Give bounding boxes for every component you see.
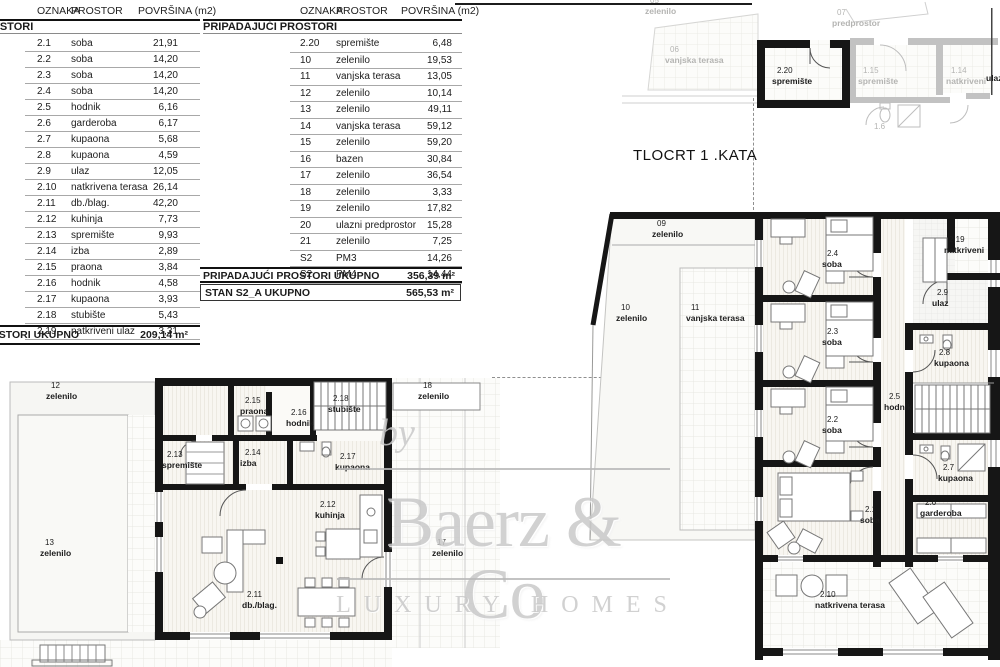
plan-label: 2.1soba [860, 505, 880, 525]
row-code: 14 [300, 121, 311, 132]
row-area: 7,25 [433, 236, 452, 247]
row-name: zelenilo [336, 88, 370, 99]
row-code: 17 [300, 170, 311, 181]
table-row: 2.10 natkrivena terasa 26,14 [25, 180, 200, 196]
row-name: soba [71, 38, 93, 49]
row-area: 5,68 [159, 134, 178, 145]
row-code: 2.2 [37, 54, 51, 65]
section-title-pripadajuci: PRIPADAJUĆI PROSTORI [203, 21, 337, 33]
row-name: natkrivena terasa [71, 182, 148, 193]
table-row: 2.7 kupaona 5,68 [25, 132, 200, 148]
table-row: 2.4 soba 14,20 [25, 84, 200, 100]
plan-label: 06vanjska terasa [665, 45, 724, 65]
row-area: 4,58 [159, 278, 178, 289]
row-name: garderoba [71, 118, 117, 129]
row-code: 2.13 [37, 230, 56, 241]
plan-label: 10zelenilo [616, 303, 647, 323]
table-row: 19 zelenilo 17,82 [290, 201, 462, 218]
table-row: 17 zelenilo 36,54 [290, 168, 462, 185]
row-area: 21,91 [153, 38, 178, 49]
row-area: 15,28 [427, 220, 452, 231]
watermark-rule-top [337, 468, 670, 470]
row-name: db./blag. [71, 198, 109, 209]
row-area: 49,11 [428, 104, 452, 115]
table-row: 2.8 kupaona 4,59 [25, 148, 200, 164]
table-row: 2.3 soba 14,20 [25, 68, 200, 84]
plan-label: 2.10natkrivena terasa [815, 590, 885, 610]
plan-label: 2.3soba [822, 327, 842, 347]
row-area: 6,16 [159, 102, 178, 113]
plan-label: 2.16hodnik [286, 408, 314, 428]
row-area: 6,17 [159, 118, 178, 129]
row-area: 3,93 [159, 294, 178, 305]
table-row: 13 zelenilo 49,11 [290, 102, 462, 119]
plan-label: 11vanjska terasa [686, 303, 745, 323]
row-area: 2,89 [159, 246, 178, 257]
row-name: kupaona [71, 294, 109, 305]
row-name: zelenilo [336, 170, 370, 181]
row-code: 13 [300, 104, 311, 115]
row-code: 2.15 [37, 262, 56, 273]
row-name: zelenilo [336, 187, 370, 198]
row-code: 2.1 [37, 38, 51, 49]
plan-label: 1.15spremište [858, 66, 898, 86]
row-name: kupaona [71, 150, 109, 161]
row-name: bazen [336, 154, 363, 165]
row-area: 19,53 [427, 55, 452, 66]
row-code: 20 [300, 220, 311, 231]
plan-title: TLOCRT 1 .KATA [633, 147, 757, 164]
row-code: 2.14 [37, 246, 56, 257]
table-row: S2 PM3 14,26 [290, 251, 462, 268]
row-area: 3,84 [159, 262, 178, 273]
section-title-prostori: PROSTORI [0, 21, 33, 33]
row-code: 2.18 [37, 310, 56, 321]
row-area: 7,73 [159, 214, 178, 225]
row-code: 2.10 [37, 182, 56, 193]
row-area: 59,12 [427, 121, 452, 132]
grand-total-value: 565,53 m² [406, 287, 454, 299]
plan-label: 2.15praona [240, 396, 268, 416]
row-code: 2.12 [37, 214, 56, 225]
row-code: 15 [300, 137, 311, 148]
plan-label: 09zelenilo [652, 219, 683, 239]
row-area: 12,05 [153, 166, 178, 177]
table-row: 2.20 spremište 6,48 [290, 36, 462, 53]
table-row: 2.11 db./blag. 42,20 [25, 196, 200, 212]
grand-total-label: STAN S2_A UKUPNO [205, 287, 310, 299]
table-row: 12 zelenilo 10,14 [290, 86, 462, 103]
table-row: 2.12 kuhinja 7,73 [25, 212, 200, 228]
plan-label: ulaz [986, 73, 1000, 83]
row-area: 9,93 [159, 230, 178, 241]
col-header-prostor: PROSTOR [71, 5, 123, 17]
plan-label: 07predprostor [832, 8, 880, 28]
plan-label: 12zelenilo [46, 381, 77, 401]
row-name: zelenilo [336, 236, 370, 247]
row-name: zelenilo [336, 137, 370, 148]
plan-label: 2.19natkriveni [944, 235, 984, 255]
plan-label: 18zelenilo [418, 381, 449, 401]
row-name: zelenilo [336, 203, 370, 214]
row-name: zelenilo [336, 104, 370, 115]
row-code: 2.16 [37, 278, 56, 289]
row-code: 2.5 [37, 102, 51, 113]
plan-label: 1.6 [874, 122, 885, 132]
row-area: 6,48 [433, 38, 452, 49]
row-code: 2.17 [37, 294, 56, 305]
table-row: 2.15 praona 3,84 [25, 260, 200, 276]
floor-plan-sheet: OZNAKA PROSTOR POVRŠINA (m2) PROSTORI 2.… [0, 0, 1000, 667]
col-header-povrsina: POVRŠINA (m2) [138, 5, 216, 17]
table-row: 11 vanjska terasa 13,05 [290, 69, 462, 86]
table-row: 15 zelenilo 59,20 [290, 135, 462, 152]
row-area: 14,20 [153, 86, 178, 97]
plan-label: 2.13spremište [162, 450, 202, 470]
row-area: 10,14 [427, 88, 452, 99]
plan-label: 2.14izba [240, 448, 261, 468]
table-rows: 2.1 soba 21,91 2.2 soba 14,20 2.3 soba 1… [25, 36, 200, 340]
row-name: stubište [71, 310, 105, 321]
row-code: 2.9 [37, 166, 51, 177]
plan-label: 2.9ulaz [932, 288, 949, 308]
row-name: izba [71, 246, 89, 257]
row-name: ulazni predprostor [336, 220, 416, 231]
row-name: spremište [71, 230, 114, 241]
table-row: 2.16 hodnik 4,58 [25, 276, 200, 292]
table-row: 2.18 stubište 5,43 [25, 308, 200, 324]
table-row: 20 ulazni predprostor 15,28 [290, 218, 462, 235]
row-code: 16 [300, 154, 311, 165]
plan-label: 2.20spremište [772, 66, 812, 86]
row-code: 2.6 [37, 118, 51, 129]
plan-label: 05zelenilo [645, 0, 676, 16]
row-area: 14,20 [153, 54, 178, 65]
row-name: hodnik [71, 278, 100, 289]
row-code: 21 [300, 236, 311, 247]
row-name: vanjska terasa [336, 71, 400, 82]
table-row: 2.17 kupaona 3,93 [25, 292, 200, 308]
grand-total-box: STAN S2_A UKUPNO 565,53 m² [200, 284, 461, 301]
plan-label: 2.4soba [822, 249, 842, 269]
table-row: 21 zelenilo 7,25 [290, 234, 462, 251]
row-area: 17,82 [427, 203, 452, 214]
table-row: 10 zelenilo 19,53 [290, 53, 462, 70]
plan-label: 2.2soba [822, 415, 842, 435]
table-row: 2.5 hodnik 6,16 [25, 100, 200, 116]
watermark-tagline: LUXURY HOMES [328, 592, 688, 619]
table-row: 2.2 soba 14,20 [25, 52, 200, 68]
row-name: kupaona [71, 134, 109, 145]
row-code: 2.4 [37, 86, 51, 97]
row-area: 4,59 [159, 150, 178, 161]
row-name: spremište [336, 38, 379, 49]
watermark-rule-bottom [337, 578, 670, 580]
row-code: 19 [300, 203, 311, 214]
row-name: kuhinja [71, 214, 103, 225]
row-area: 14,20 [153, 70, 178, 81]
row-code: 2.11 [37, 198, 56, 209]
table-rows: 2.20 spremište 6,48 10 zelenilo 19,53 11… [290, 36, 462, 284]
table-row: 2.13 spremište 9,93 [25, 228, 200, 244]
row-area: 59,20 [427, 137, 452, 148]
row-name: hodnik [71, 102, 100, 113]
table-row: 14 vanjska terasa 59,12 [290, 119, 462, 136]
row-area: 13,05 [427, 71, 452, 82]
row-name: soba [71, 70, 93, 81]
plan-label: 2.7kupaona [938, 463, 973, 483]
watermark-by: by [379, 411, 415, 455]
row-code: 2.8 [37, 150, 51, 161]
plan-label: 2.6garderoba [920, 498, 962, 518]
row-area: 3,33 [433, 187, 452, 198]
row-name: PM3 [336, 253, 357, 264]
table-row: 16 bazen 30,84 [290, 152, 462, 169]
plan-label: 2.18stubište [328, 394, 361, 414]
table-row: 2.1 soba 21,91 [25, 36, 200, 52]
table-row: 2.9 ulaz 12,05 [25, 164, 200, 180]
row-area: 36,54 [427, 170, 452, 181]
row-area: 26,14 [153, 182, 178, 193]
row-name: ulaz [71, 166, 89, 177]
plan-label: 13zelenilo [40, 538, 71, 558]
col-header-povrsina: POVRŠINA (m2) [401, 5, 479, 17]
row-code: 2.3 [37, 70, 51, 81]
row-code: 10 [300, 55, 311, 66]
row-area: 42,20 [153, 198, 178, 209]
plan-label: 2.5hodnik [884, 392, 912, 412]
plan-label: 1.14natkriveni [946, 66, 986, 86]
row-name: soba [71, 86, 93, 97]
row-area: 14,26 [427, 253, 452, 264]
row-code: 18 [300, 187, 311, 198]
row-name: soba [71, 54, 93, 65]
row-code: S2 [300, 253, 312, 264]
row-code: 2.20 [300, 38, 319, 49]
table-row: 2.14 izba 2,89 [25, 244, 200, 260]
row-area: 5,43 [159, 310, 178, 321]
plan-label: 2.8kupaona [934, 348, 969, 368]
table-row: 2.6 garderoba 6,17 [25, 116, 200, 132]
plan-label: 2.11db./blag. [242, 590, 277, 610]
row-name: praona [71, 262, 102, 273]
total-value: 209,14 m² [0, 329, 188, 341]
col-header-prostor: PROSTOR [336, 5, 388, 17]
row-code: 12 [300, 88, 311, 99]
row-code: 11 [300, 71, 310, 82]
row-name: vanjska terasa [336, 121, 400, 132]
row-area: 30,84 [427, 154, 452, 165]
row-name: zelenilo [336, 55, 370, 66]
table-row: 18 zelenilo 3,33 [290, 185, 462, 202]
row-code: 2.7 [37, 134, 51, 145]
